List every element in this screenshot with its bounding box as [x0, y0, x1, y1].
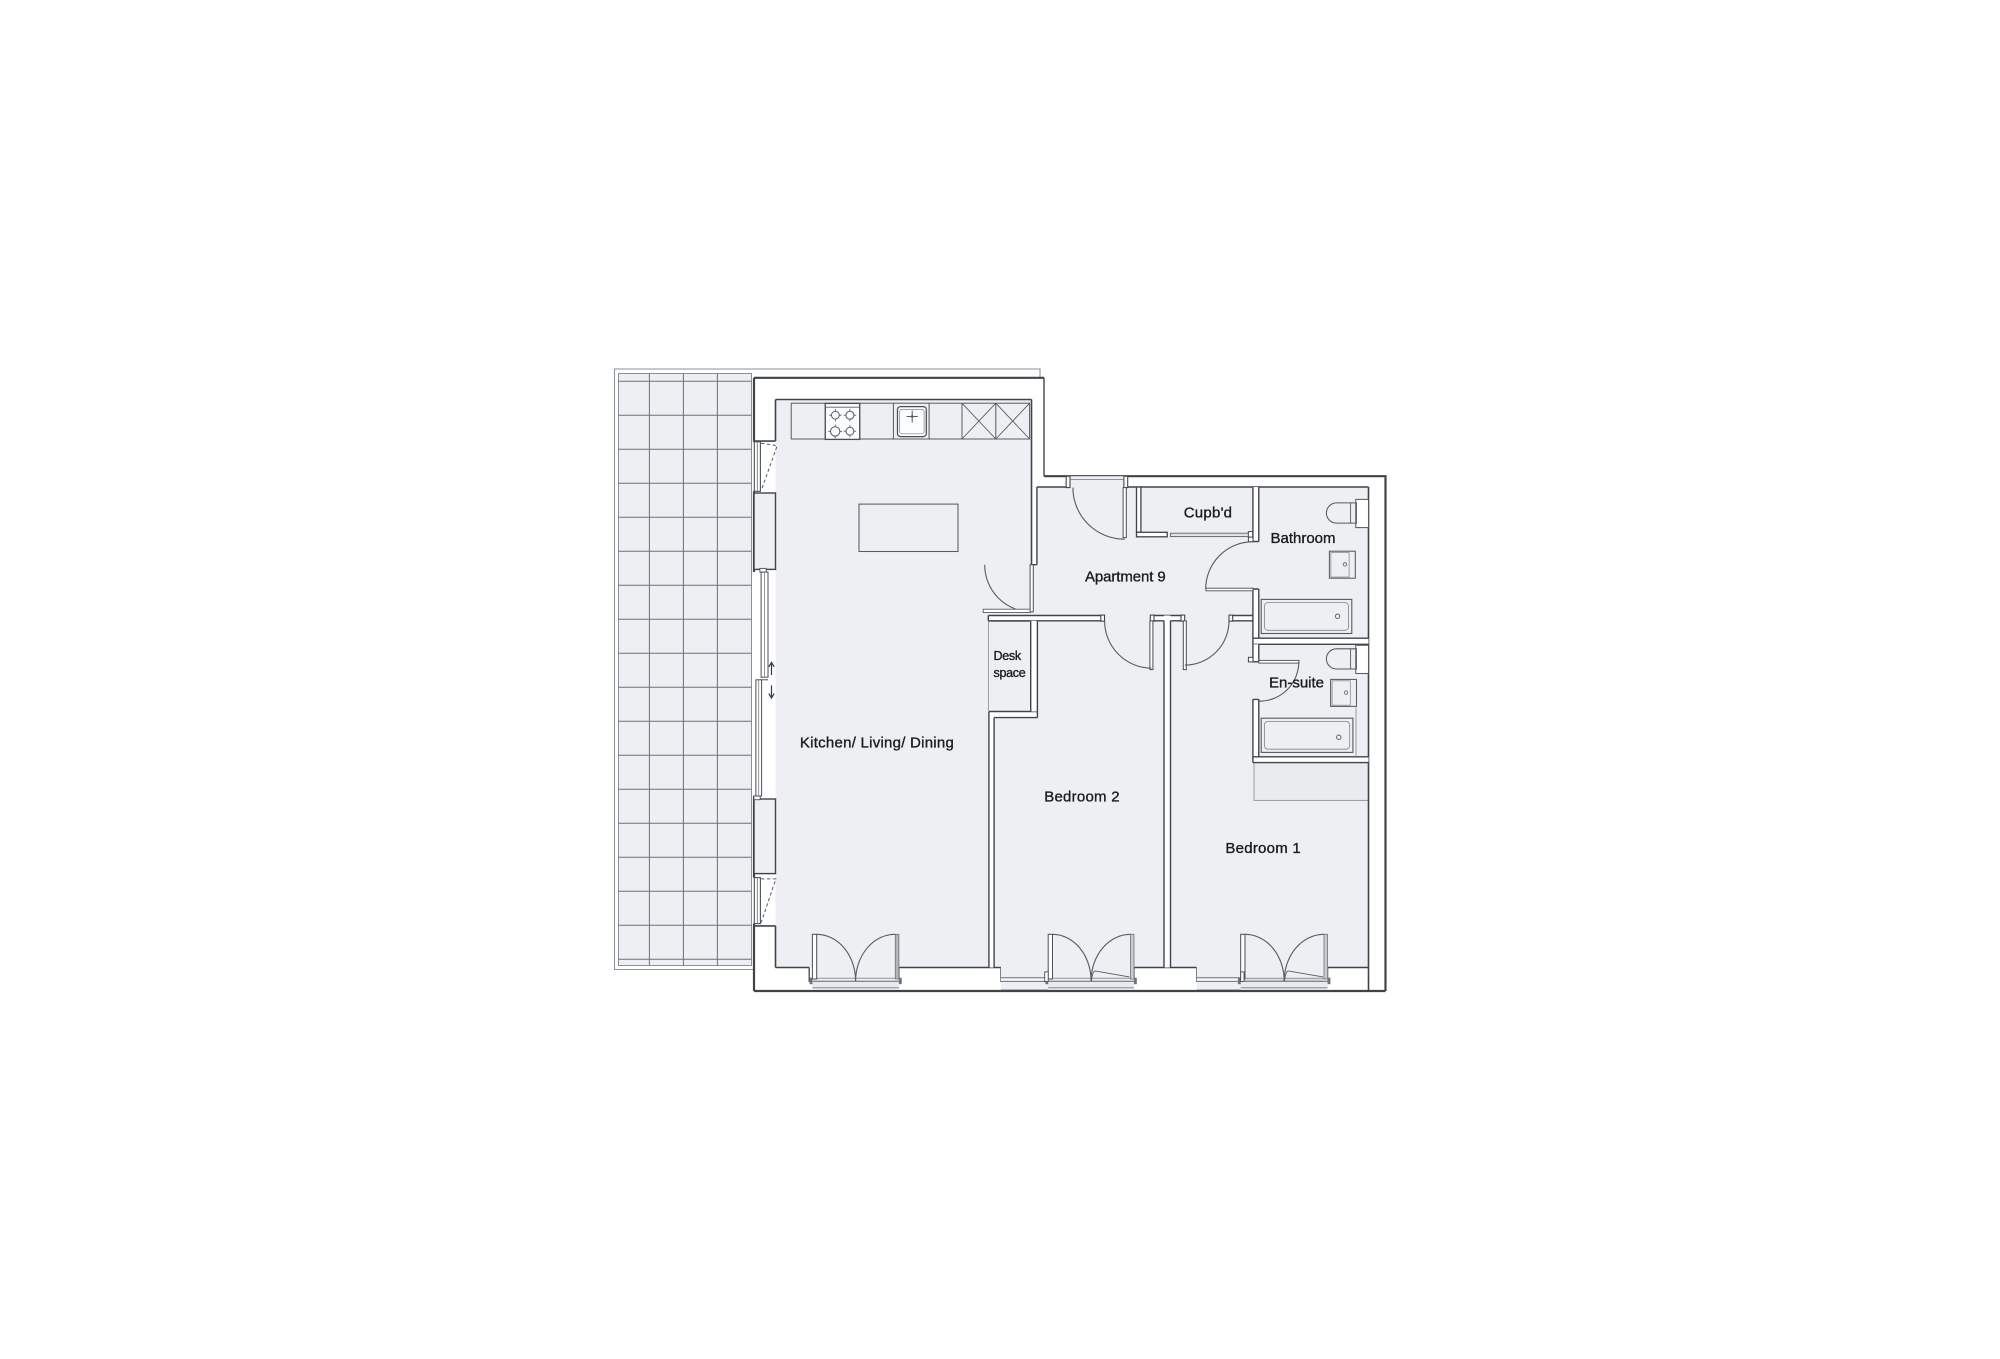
svg-text:space: space [994, 666, 1026, 680]
svg-text:Apartment 9: Apartment 9 [1085, 569, 1166, 586]
svg-text:Kitchen/ Living/ Dining: Kitchen/ Living/ Dining [800, 735, 954, 752]
svg-text:Cupb'd: Cupb'd [1184, 504, 1233, 521]
svg-text:Bedroom 1: Bedroom 1 [1225, 840, 1301, 857]
svg-text:Desk: Desk [994, 649, 1022, 663]
svg-text:Bedroom 2: Bedroom 2 [1044, 788, 1120, 805]
svg-text:Bathroom: Bathroom [1270, 530, 1335, 547]
svg-text:En-suite: En-suite [1269, 675, 1324, 692]
